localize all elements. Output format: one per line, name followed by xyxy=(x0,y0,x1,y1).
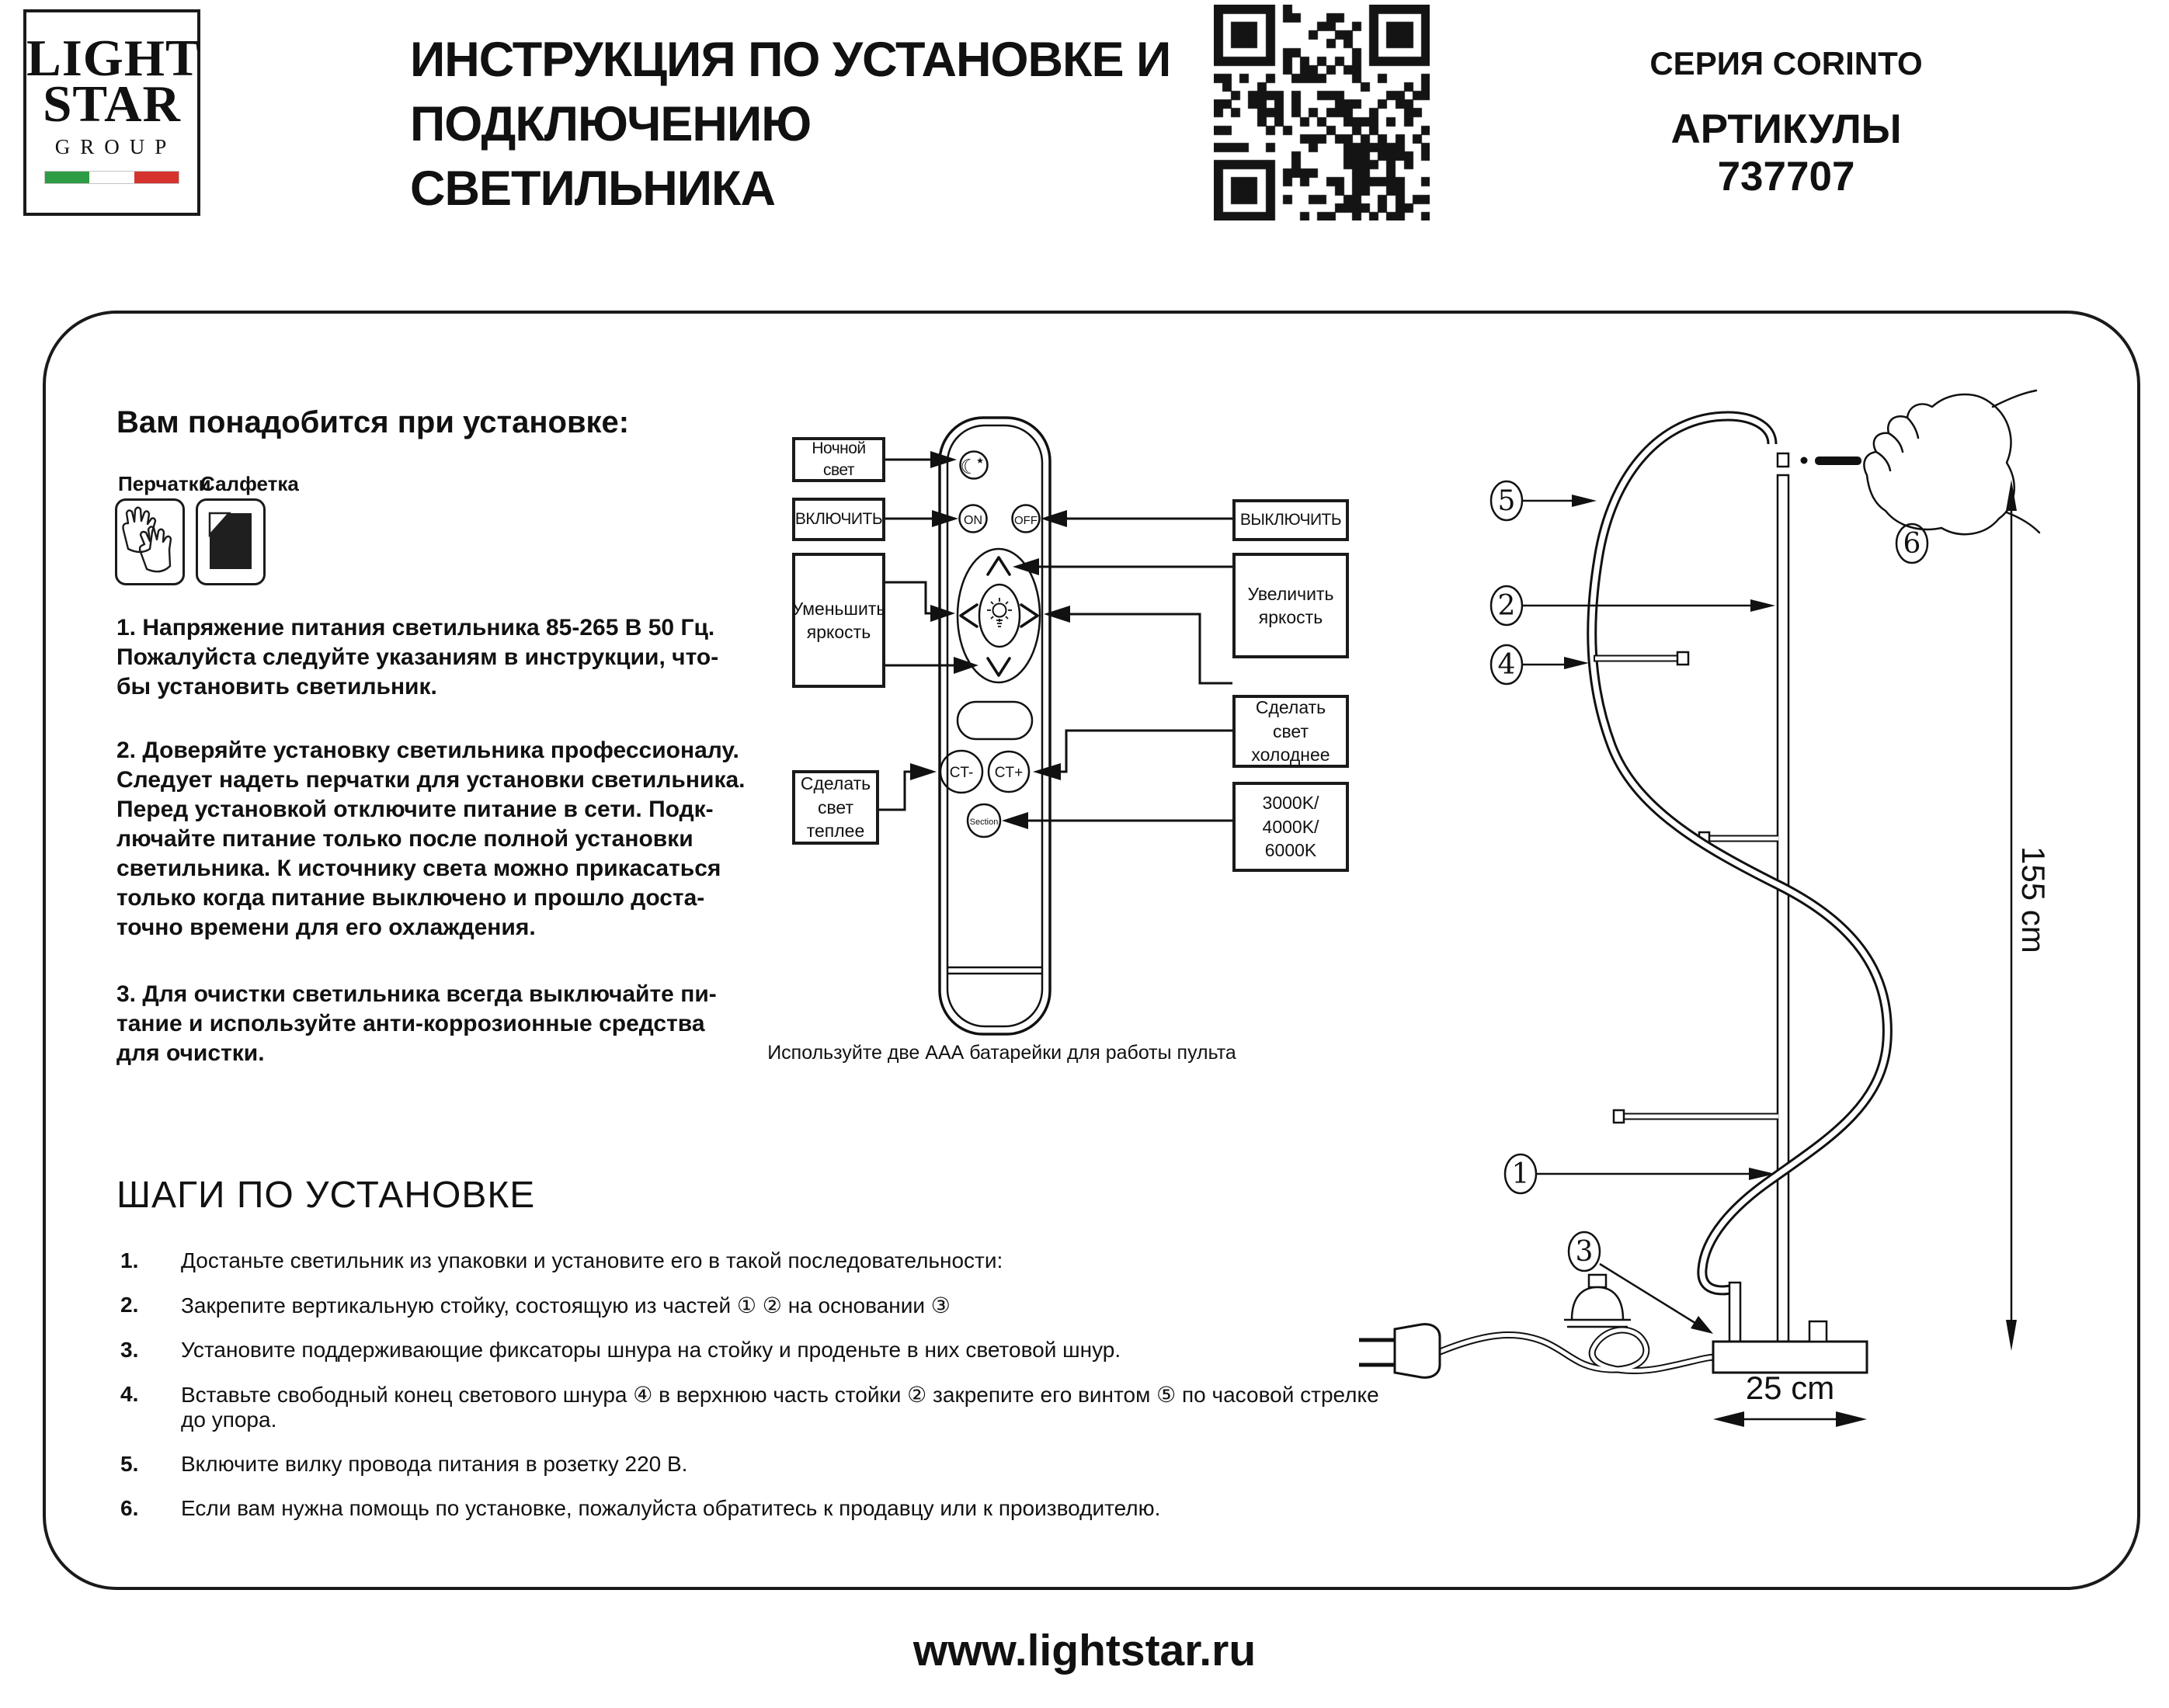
instruction-sheet: LIGHT STAR GROUP ИНСТРУКЦИЯ ПО УСТАНОВКЕ… xyxy=(0,0,2169,1708)
dial-left-arrow xyxy=(961,605,977,627)
ct-plus-label: CT+ xyxy=(995,765,1023,781)
lamp-pole xyxy=(1778,475,1788,1342)
step-number: 3. xyxy=(120,1338,181,1363)
base-knob xyxy=(1809,1321,1827,1342)
callout-1: 1 xyxy=(1505,1154,1775,1193)
section-label: Section xyxy=(970,818,999,827)
steps-heading: ШАГИ ПО УСТАНОВКЕ xyxy=(116,1174,535,1217)
height-dimension: 155 cm xyxy=(2006,480,2052,1351)
dial-down-arrow xyxy=(988,658,1010,675)
power-cord xyxy=(1438,1330,1716,1370)
steps-list: 1. Достаньте светильник из упаковки и ус… xyxy=(120,1248,1402,1540)
width-label: 25 cm xyxy=(1746,1370,1834,1406)
callout-2: 2 xyxy=(1491,586,1775,625)
svg-text:2: 2 xyxy=(1498,590,1516,622)
remote-body xyxy=(940,418,1050,1034)
label-decrease-brightness: Уменьшить яркость xyxy=(792,553,885,688)
step-number: 6. xyxy=(120,1496,181,1521)
on-button-label: ON xyxy=(964,514,982,527)
dial-up-arrow xyxy=(988,557,1010,575)
website-url: www.lightstar.ru xyxy=(0,1625,2169,1676)
screw xyxy=(1815,457,1861,465)
off-button-label: OFF xyxy=(1014,514,1038,527)
height-label: 155 cm xyxy=(2015,846,2052,953)
step-text: Если вам нужна помощь по установке, пожа… xyxy=(181,1496,1402,1521)
lamp-base xyxy=(1713,1342,1867,1373)
pole-top-stub xyxy=(1778,453,1788,467)
step-number: 4. xyxy=(120,1382,181,1432)
callouts: 5 2 4 6 xyxy=(1491,481,1927,1334)
hand-with-screw-icon xyxy=(1864,391,2039,534)
step-row: 3. Установите поддерживающие фиксаторы ш… xyxy=(120,1338,1402,1363)
remote-connectors xyxy=(879,451,1232,829)
svg-text:6: 6 xyxy=(1903,528,1921,560)
svg-text:4: 4 xyxy=(1498,649,1516,681)
label-turn-on: ВКЛЮЧИТЬ xyxy=(792,498,885,541)
step-row: 6. Если вам нужна помощь по установке, п… xyxy=(120,1496,1402,1521)
step-row: 4. Вставьте свободный конец светового шн… xyxy=(120,1382,1402,1432)
width-dimension: 25 cm xyxy=(1713,1370,1867,1427)
label-increase-brightness: Увеличить яркость xyxy=(1232,553,1349,658)
step-row: 1. Достаньте светильник из упаковки и ус… xyxy=(120,1248,1402,1273)
step-number: 5. xyxy=(120,1452,181,1477)
remote-control: ☾ ★ ON OFF xyxy=(940,418,1050,1034)
label-night-light: Ночной свет xyxy=(792,437,885,482)
dial-right-arrow xyxy=(1021,605,1038,627)
screw-dot xyxy=(1801,457,1808,464)
cord-tube xyxy=(1729,1283,1740,1342)
svg-text:1: 1 xyxy=(1512,1158,1530,1190)
step-text: Установите поддерживающие фиксаторы шнур… xyxy=(181,1338,1402,1363)
step-text: Включите вилку провода питания в розетку… xyxy=(181,1452,1402,1477)
label-color-temperatures: 3000K/ 4000K/ 6000K xyxy=(1232,782,1349,872)
label-cooler-light: Сделать свет холоднее xyxy=(1232,695,1349,768)
inline-switch xyxy=(1564,1275,1631,1327)
callout-6: 6 xyxy=(1896,524,1927,563)
bulb-icon xyxy=(987,598,1012,627)
step-row: 5. Включите вилку провода питания в розе… xyxy=(120,1452,1402,1477)
lamp-diagram: 5 2 4 6 xyxy=(1359,391,2052,1427)
callout-4: 4 xyxy=(1491,645,1589,684)
svg-text:5: 5 xyxy=(1498,485,1516,517)
ct-minus-label: CT- xyxy=(950,765,974,781)
svg-text:3: 3 xyxy=(1576,1236,1594,1268)
step-number: 1. xyxy=(120,1248,181,1273)
label-warmer-light: Сделать свет теплее xyxy=(792,770,879,845)
step-row: 2. Закрепите вертикальную стойку, состоя… xyxy=(120,1293,1402,1318)
step-number: 2. xyxy=(120,1293,181,1318)
svg-text:★: ★ xyxy=(976,457,984,466)
callout-5: 5 xyxy=(1491,481,1597,520)
step-text: Закрепите вертикальную стойку, состоящую… xyxy=(181,1293,1402,1318)
dial-center xyxy=(979,585,1020,647)
step-text: Достаньте светильник из упаковки и устан… xyxy=(181,1248,1402,1273)
blank-button xyxy=(958,702,1032,739)
light-cord xyxy=(1592,416,1888,1290)
battery-note: Используйте две ААА батарейки для работы… xyxy=(761,1042,1243,1064)
label-turn-off: ВЫКЛЮЧИТЬ xyxy=(1232,499,1349,541)
step-text: Вставьте свободный конец светового шнура… xyxy=(181,1382,1402,1432)
moon-star-icon: ☾ ★ xyxy=(960,455,984,478)
